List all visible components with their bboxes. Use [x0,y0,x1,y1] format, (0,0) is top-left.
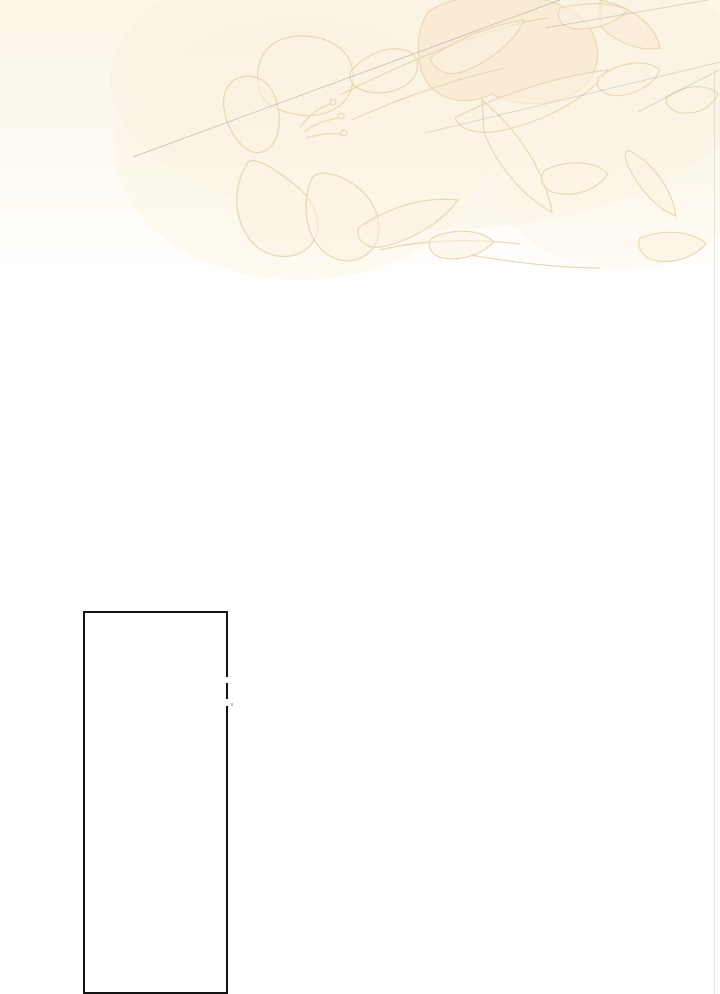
border-notch-upper [224,677,231,683]
floral-line-art [0,0,720,280]
page-seam-line [714,70,715,994]
empty-panel-frame [83,611,228,994]
border-speck [231,703,233,706]
border-notch-lower [224,699,231,706]
comic-page [0,0,720,994]
